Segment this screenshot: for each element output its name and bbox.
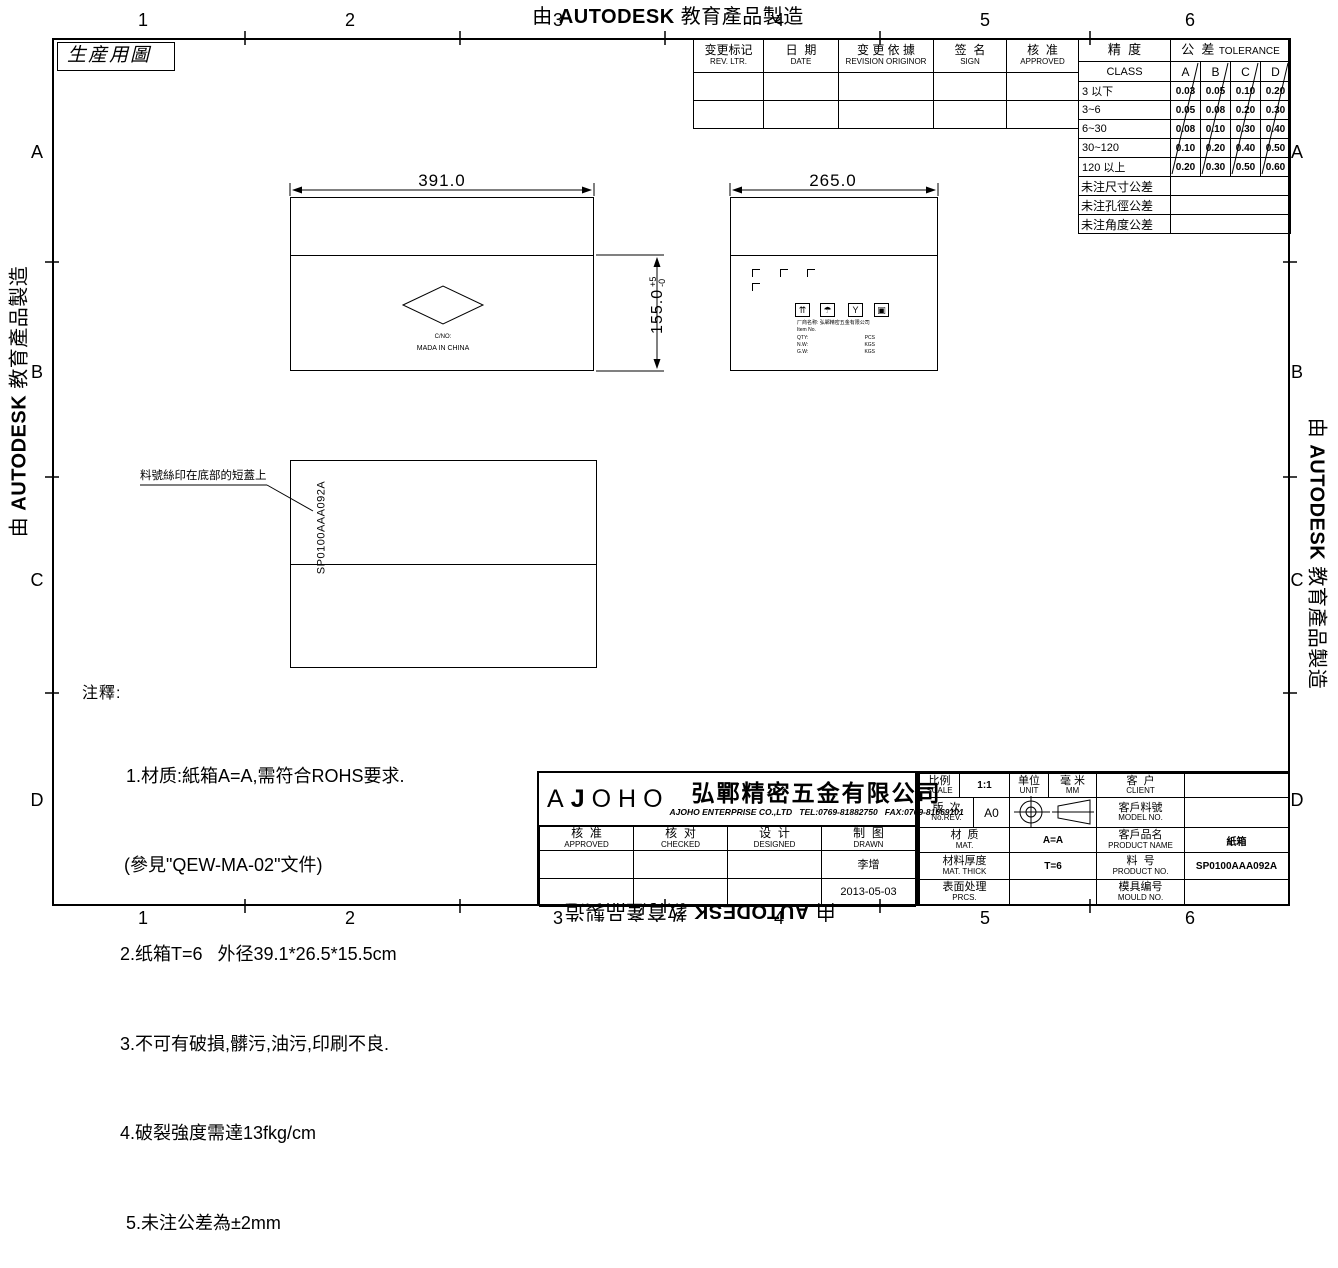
handle-with-care-icon: ▣	[874, 303, 889, 317]
model-no-label: 客戶料號MODEL NO.	[1097, 798, 1185, 828]
tol-val: 0.05	[1171, 101, 1201, 120]
tol-val: 0.10	[1231, 82, 1261, 101]
tol-val: 0.60	[1261, 158, 1291, 177]
scale-label: 比例SCALE	[920, 774, 960, 798]
grid-col-label-top: 2	[339, 10, 361, 31]
notes-title: 注釋:	[82, 679, 121, 703]
view-side-fold-line	[730, 255, 938, 256]
rev-value: A0	[974, 798, 1010, 828]
autodesk-watermark-left: 由 AUTODESK 教育產品製造	[3, 182, 32, 622]
tol-val: 0.10	[1171, 139, 1201, 158]
dimension-height-value: 155.0	[649, 289, 666, 334]
tol-val: 0.20	[1231, 101, 1261, 120]
tol-val: 0.20	[1261, 82, 1291, 101]
grid-col-label-top: 1	[132, 10, 154, 31]
note-item: (參見"QEW-MA-02"文件)	[120, 851, 405, 881]
unit-label: 单位UNIT	[1010, 774, 1049, 798]
tol-val: 0.08	[1201, 101, 1231, 120]
tol-val: 0.20	[1171, 158, 1201, 177]
view-top-fold-line	[290, 255, 594, 256]
dimension-width-265: 265.0	[803, 171, 863, 191]
autodesk-watermark-bottom: 由 AUTODESK 教育產品製造	[480, 899, 920, 928]
tol-col: A	[1171, 62, 1201, 82]
tol-col: C	[1231, 62, 1261, 82]
projection-symbol-cell	[1010, 798, 1097, 828]
net-weight-line: N.W:KGS	[797, 342, 889, 349]
rev-header: 签 名SIGN	[934, 39, 1007, 73]
rev-cell	[764, 101, 839, 129]
tol-note-label: 未注孔徑公差	[1079, 196, 1171, 215]
product-name-value: 紙箱	[1185, 828, 1289, 853]
rev-header: 变 更 依 據REVISION ORIGINOR	[839, 39, 934, 73]
process-label: 表面处理PRCS.	[920, 880, 1010, 905]
rev-cell	[1007, 73, 1079, 101]
tol-val: 0.05	[1201, 82, 1231, 101]
mould-no-label: 模具编号MOULD NO.	[1097, 880, 1185, 905]
checked-value	[634, 850, 728, 878]
carton-origin-label: MADA IN CHINA	[393, 345, 493, 352]
tol-note-label: 未注尺寸公差	[1079, 177, 1171, 196]
title-block-left: AJOHO 弘鄲精密五金有限公司 AJOHO ENTERPRISE CO.,LT…	[537, 771, 917, 906]
rev-header: 日 期DATE	[764, 39, 839, 73]
logo-letters: OHO	[592, 785, 670, 813]
logo-letter-j: J	[571, 785, 592, 813]
tol-val: 0.08	[1171, 120, 1201, 139]
note-item: 3.不可有破損,髒污,油污,印刷不良.	[120, 1030, 405, 1060]
note-item: 2.纸箱T=6 外径39.1*26.5*15.5cm	[120, 940, 405, 970]
tol-class-sub: CLASS	[1079, 62, 1171, 82]
dimension-tol-minus: -0	[658, 277, 667, 287]
tol-val: 0.40	[1261, 120, 1291, 139]
mould-no-value	[1185, 880, 1289, 905]
watermark-text: 由	[532, 6, 559, 28]
gross-weight-line: G.W:KGS	[797, 349, 889, 356]
item-no-line: Item No.	[797, 327, 889, 334]
revision-table: 变更标记REV. LTR. 日 期DATE 变 更 依 據REVISION OR…	[693, 38, 1079, 129]
process-value	[1010, 880, 1097, 905]
tol-val: 0.40	[1231, 139, 1261, 158]
product-name-label: 客戶品名PRODUCT NAME	[1097, 828, 1185, 853]
company-header: AJOHO 弘鄲精密五金有限公司 AJOHO ENTERPRISE CO.,LT…	[539, 773, 915, 826]
watermark-text: 教育產品製造	[675, 6, 804, 28]
fragile-icon: Y	[848, 303, 863, 317]
tol-range: 30~120	[1079, 139, 1171, 158]
tol-val: 0.03	[1171, 82, 1201, 101]
tol-val: 0.50	[1231, 158, 1261, 177]
watermark-text: 由	[9, 511, 31, 538]
checked-header: 核 对CHECKED	[634, 827, 728, 851]
rev-cell	[1007, 101, 1079, 129]
unit-value: 毫 米MM	[1049, 774, 1097, 798]
watermark-text: 教育產品製造	[564, 900, 693, 922]
rev-cell	[694, 73, 764, 101]
tol-val: 0.30	[1201, 158, 1231, 177]
rev-cell	[934, 101, 1007, 129]
rev-header: 变更标记REV. LTR.	[694, 39, 764, 73]
logo-letter: A	[547, 785, 571, 813]
keep-dry-icon: ☂	[820, 303, 835, 317]
tolerance-table: 精 度 公 差 TOLERANCE CLASS A B C D 3 以下0.03…	[1078, 38, 1291, 234]
client-value	[1185, 774, 1289, 798]
print-registration-mark	[807, 269, 815, 277]
grid-col-label-bottom: 6	[1179, 908, 1201, 929]
grid-row-label-left: D	[26, 790, 48, 811]
rev-cell	[839, 73, 934, 101]
shipping-mark-text: 厂商名称: 弘鄲精密五金有限公司 Item No. QTY:PCS N.W:KG…	[797, 320, 889, 356]
carton-cno-label: C/NO:	[393, 334, 493, 340]
print-registration-mark	[752, 269, 760, 277]
view-bottom-fold-line	[290, 564, 597, 565]
note-item: 1.材质:紙箱A=A,需符合ROHS要求.	[120, 762, 405, 792]
rev-label: 版 次No.REV.	[920, 798, 974, 828]
grid-col-label-top: 6	[1179, 10, 1201, 31]
tol-range: 120 以上	[1079, 158, 1171, 177]
leader-note: 料號絲印在底部的短蓋上	[140, 467, 267, 483]
notes-list: 1.材质:紙箱A=A,需符合ROHS要求. (參見"QEW-MA-02"文件) …	[120, 702, 405, 1268]
model-no-value	[1185, 798, 1289, 828]
watermark-text: 教育產品製造	[9, 266, 31, 395]
rev-cell	[839, 101, 934, 129]
print-registration-mark	[780, 269, 788, 277]
tol-range: 6~30	[1079, 120, 1171, 139]
designed-header: 设 计DESIGNED	[728, 827, 822, 851]
drawn-header: 制 图DRAWN	[822, 827, 916, 851]
autodesk-brand-text: AUTODESK	[9, 395, 31, 511]
grid-col-label-bottom: 5	[974, 908, 996, 929]
rev-cell	[934, 73, 1007, 101]
tol-range: 3 以下	[1079, 82, 1171, 101]
watermark-text: 由	[809, 900, 836, 922]
material-label: 材 质MAT.	[920, 828, 1010, 853]
watermark-text: 教育產品製造	[1306, 560, 1328, 689]
autodesk-watermark-right: 由 AUTODESK 教育產品製造	[1305, 334, 1334, 774]
tol-class-header: 精 度	[1079, 39, 1171, 62]
company-logo: AJOHO	[539, 785, 670, 814]
dimension-height-155: 155.0+5-0	[627, 275, 647, 347]
tol-note-label: 未注角度公差	[1079, 215, 1171, 234]
tol-val: 0.30	[1231, 120, 1261, 139]
product-no-label: 料 号PRODUCT NO.	[1097, 853, 1185, 880]
note-item: 4.破裂強度需達13fkg/cm	[120, 1119, 405, 1149]
product-no-value: SP0100AAA092A	[1185, 853, 1289, 880]
tol-tolerance-header: 公 差 TOLERANCE	[1171, 39, 1291, 62]
drawn-name: 李增	[822, 850, 916, 878]
dimension-width-391: 391.0	[412, 171, 472, 191]
tol-val: 0.30	[1261, 101, 1291, 120]
thickness-label: 材料厚度MAT. THICK	[920, 853, 1010, 880]
tol-note-value	[1171, 177, 1291, 196]
client-label: 客 户CLIENT	[1097, 774, 1185, 798]
autodesk-brand-text: AUTODESK	[1306, 444, 1328, 560]
rev-cell	[764, 73, 839, 101]
thickness-value: T=6	[1010, 853, 1097, 880]
silkscreen-part-number: SP0100AAA092A	[316, 477, 329, 579]
rev-cell	[694, 101, 764, 129]
grid-row-label-left: A	[26, 142, 48, 163]
tol-col: B	[1201, 62, 1231, 82]
grid-col-label-top: 5	[974, 10, 996, 31]
tol-range: 3~6	[1079, 101, 1171, 120]
print-registration-mark	[752, 283, 760, 291]
this-way-up-icon: ⇈	[795, 303, 810, 317]
note-item: 5.未注公差為±2mm	[120, 1209, 405, 1239]
tol-val: 0.20	[1201, 139, 1231, 158]
autodesk-brand-text: AUTODESK	[693, 900, 809, 922]
tol-note-value	[1171, 215, 1291, 234]
autodesk-brand-text: AUTODESK	[559, 6, 675, 28]
watermark-text: 由	[1306, 418, 1328, 445]
approved-value	[540, 850, 634, 878]
approved-header: 核 准APPROVED	[540, 827, 634, 851]
tol-val: 0.50	[1261, 139, 1291, 158]
tol-note-value	[1171, 196, 1291, 215]
autodesk-watermark-top: 由 AUTODESK 教育產品製造	[448, 0, 888, 29]
designed-value	[728, 850, 822, 878]
manufacturer-line: 厂商名称: 弘鄲精密五金有限公司	[797, 320, 889, 327]
tol-val: 0.10	[1201, 120, 1231, 139]
qty-line: QTY:PCS	[797, 335, 889, 342]
title-block-right: 比例SCALE 1:1 单位UNIT 毫 米MM 客 户CLIENT 版 次No…	[917, 771, 1290, 906]
scale-value: 1:1	[960, 774, 1010, 798]
tol-col: D	[1261, 62, 1291, 82]
material-value: A=A	[1010, 828, 1097, 853]
rev-header: 核 准APPROVED	[1007, 39, 1079, 73]
doc-type-box: 生産用圖	[57, 42, 175, 71]
